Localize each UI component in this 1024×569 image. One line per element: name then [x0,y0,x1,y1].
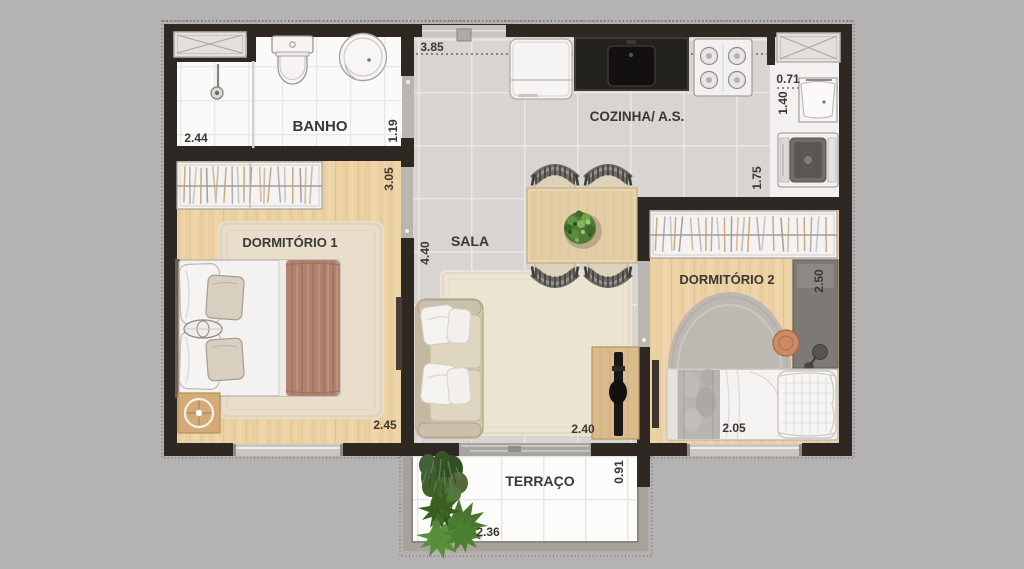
svg-text:4.40: 4.40 [418,241,432,265]
svg-text:2.44: 2.44 [184,131,208,145]
svg-text:0.91: 0.91 [612,460,626,484]
svg-text:SALA: SALA [451,233,489,249]
svg-text:2.36: 2.36 [476,525,500,539]
svg-text:3.05: 3.05 [382,167,396,191]
svg-text:2.50: 2.50 [812,269,826,293]
svg-text:0.71: 0.71 [776,72,800,86]
svg-text:DORMITÓRIO 1: DORMITÓRIO 1 [242,235,337,250]
svg-text:COZINHA/ A.S.: COZINHA/ A.S. [590,109,685,124]
svg-text:3.85: 3.85 [420,40,444,54]
svg-text:BANHO: BANHO [293,118,348,135]
svg-text:1.19: 1.19 [386,119,400,143]
svg-text:2.45: 2.45 [373,418,397,432]
svg-text:TERRAÇO: TERRAÇO [505,473,574,489]
svg-text:2.05: 2.05 [722,421,746,435]
svg-text:1.40: 1.40 [776,91,790,115]
svg-text:2.40: 2.40 [571,422,595,436]
svg-text:1.75: 1.75 [750,166,764,190]
svg-text:DORMITÓRIO 2: DORMITÓRIO 2 [679,272,774,287]
